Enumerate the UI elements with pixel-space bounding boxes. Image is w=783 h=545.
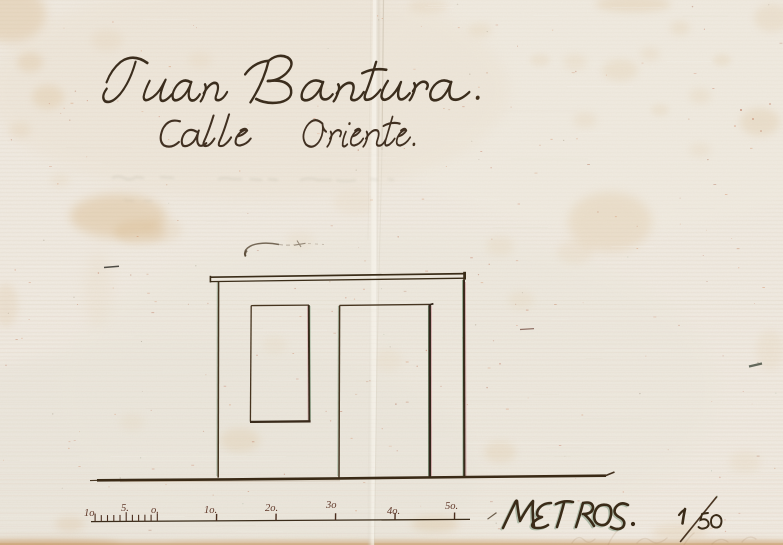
svg-text:1o: 1o <box>84 508 95 519</box>
svg-text:5.: 5. <box>121 503 129 514</box>
svg-text:5o.: 5o. <box>445 501 458 512</box>
svg-text:1o.: 1o. <box>204 505 217 516</box>
svg-text:4o.: 4o. <box>387 506 400 517</box>
svg-text:3o: 3o <box>325 500 337 511</box>
svg-text:2o.: 2o. <box>265 503 278 514</box>
svg-text:o.: o. <box>151 505 159 516</box>
